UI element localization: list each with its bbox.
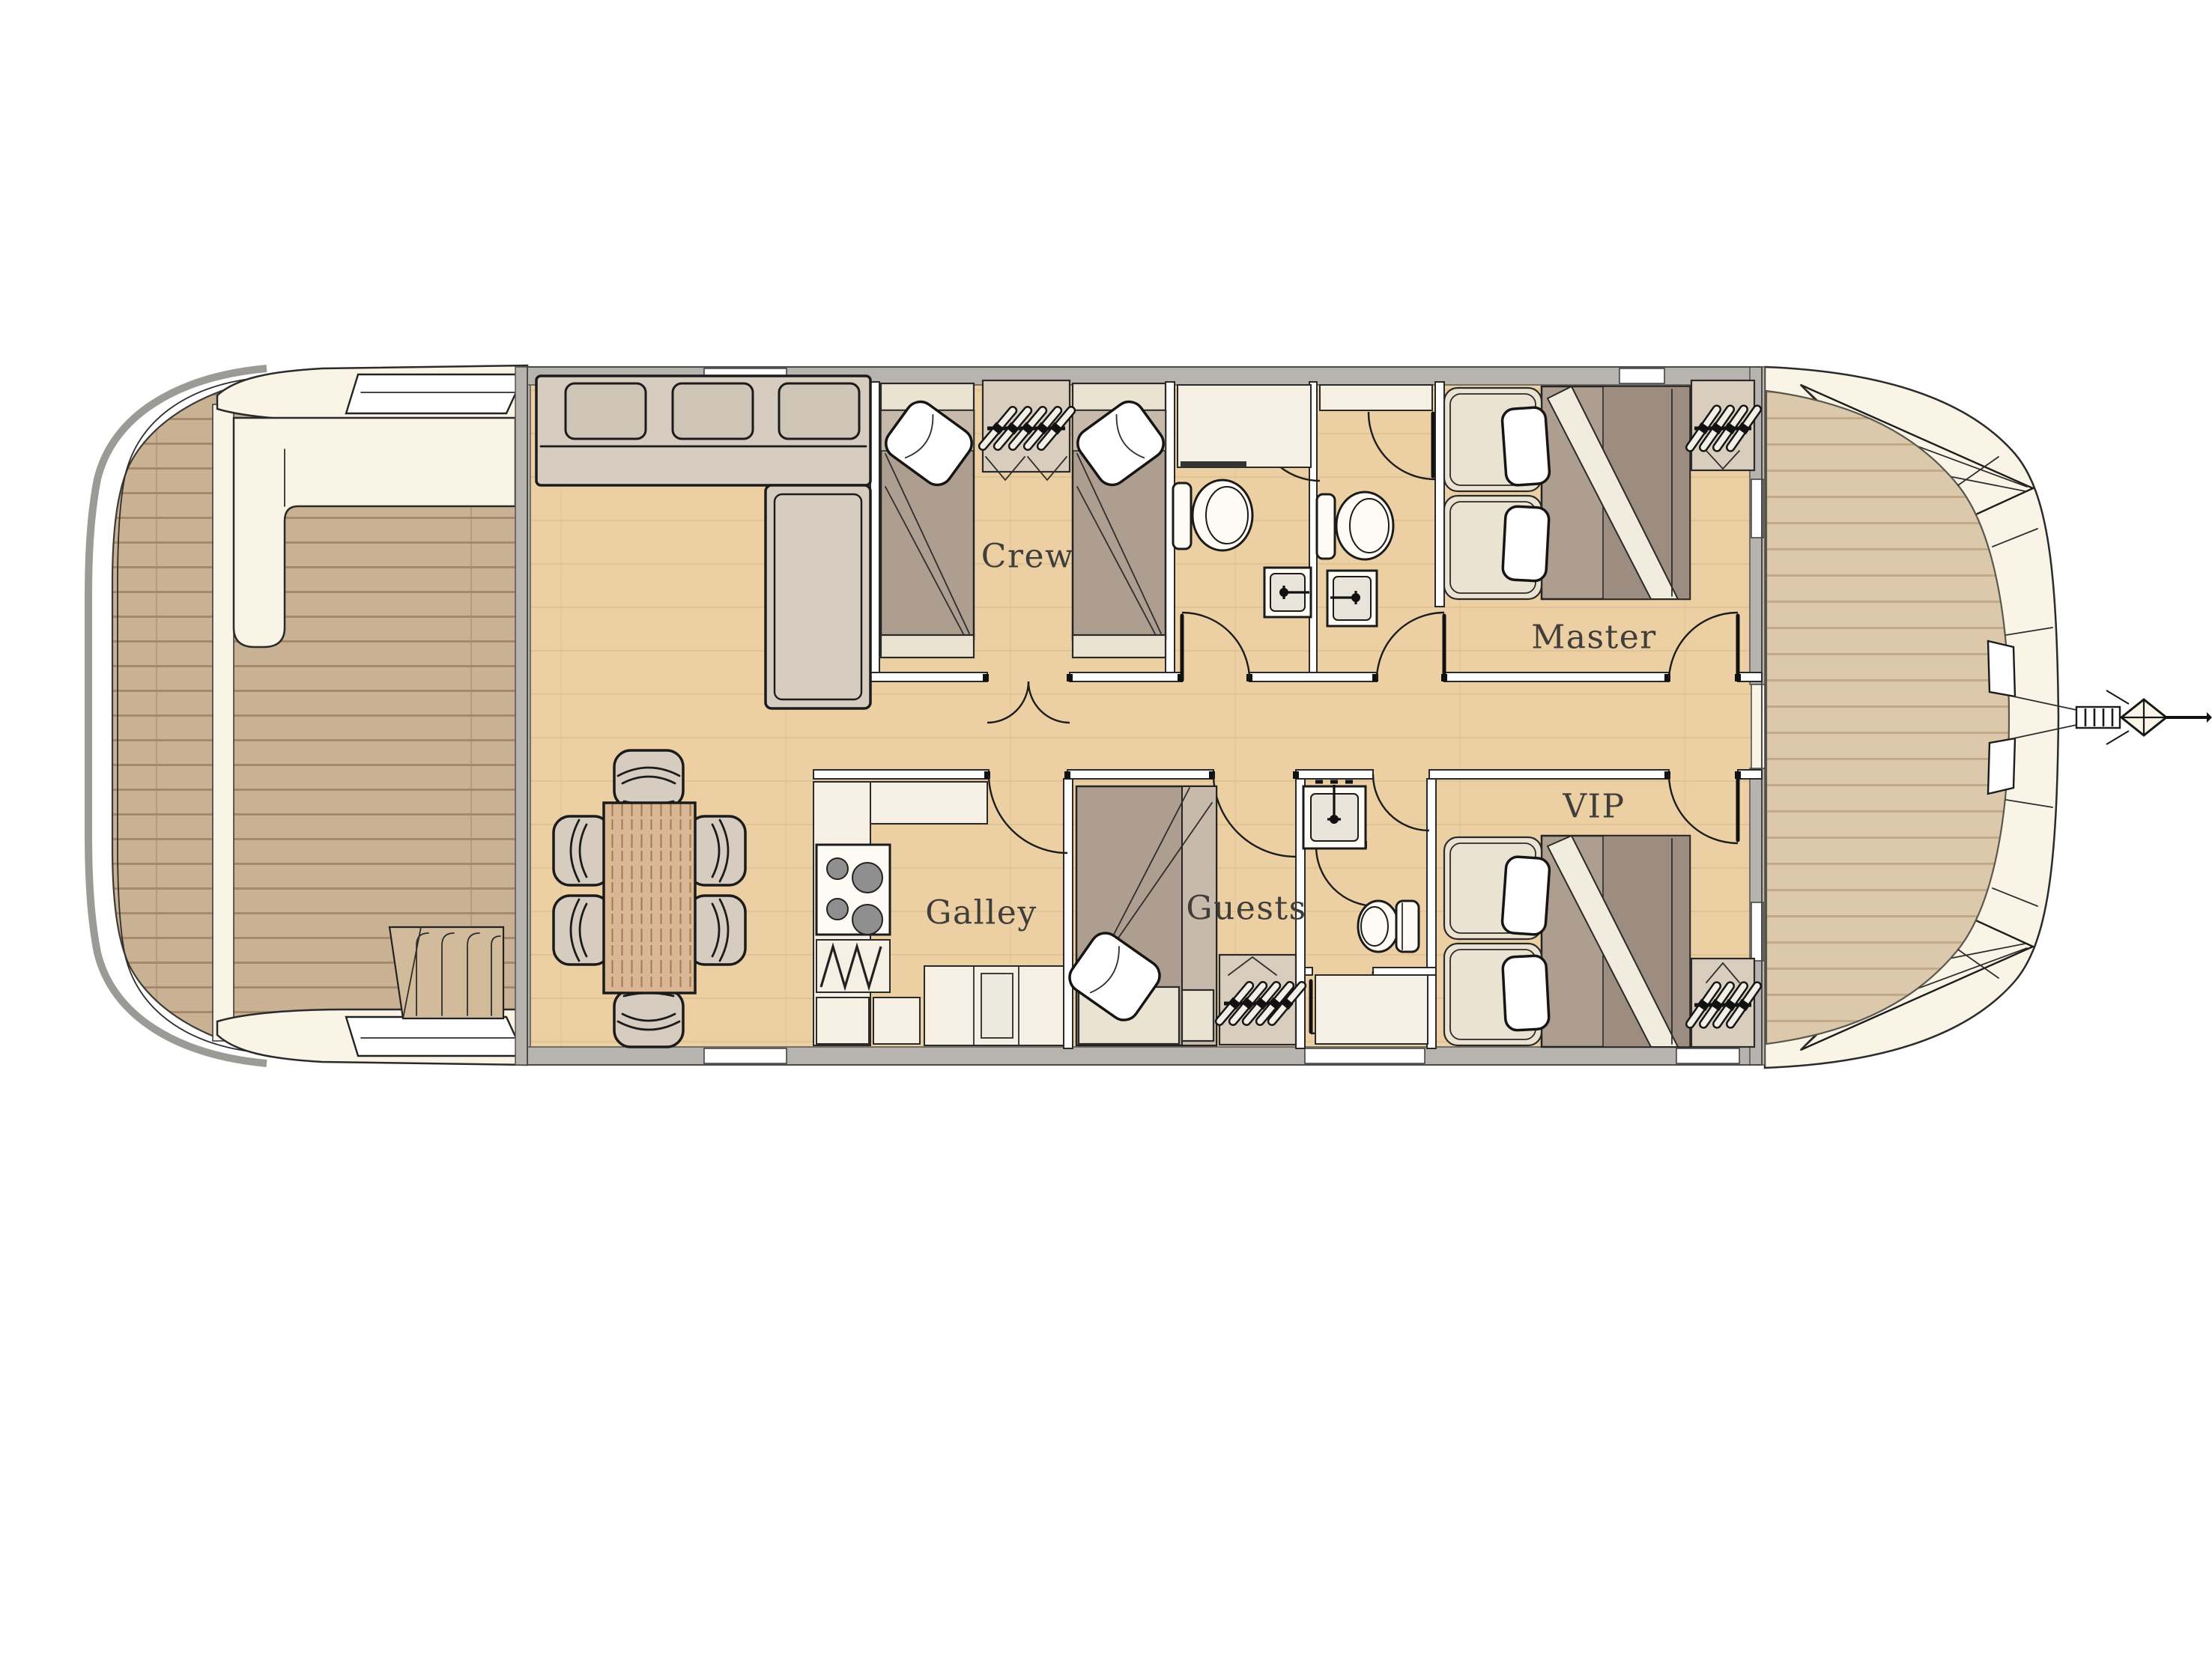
chaise-longue [766,485,870,708]
room-label-galley: Galley [925,894,1037,932]
sink-shared [1264,568,1311,617]
shower-guests [1315,975,1428,1044]
aft-stairs [390,927,503,1018]
master-wardrobe [1684,380,1764,470]
toilet-master [1317,492,1393,559]
vip-wardrobe [1684,959,1764,1047]
guests-wardrobe [1213,955,1308,1045]
yacht-floor-plan: Crew [0,0,2212,1658]
room-label-guests: Guests [1186,890,1306,928]
sink-guests [1303,782,1366,848]
bow-window-upper [1988,641,2015,696]
deck-hatch-port [346,374,524,413]
crew-bed-right [1072,383,1169,658]
galley-counter-south [924,966,1064,1045]
room-label-crew: Crew [981,538,1074,576]
bow-window-lower [1988,738,2015,794]
dining-table [604,803,695,993]
main-cabin: Crew [515,367,1765,1065]
toilet-guests [1358,901,1419,952]
stove [816,845,890,935]
crew-wardrobe [976,380,1077,480]
sink-master [1327,571,1377,626]
toilet-shared [1173,480,1252,550]
salon-sofa [536,376,870,485]
bow-doorstep [1751,684,1765,768]
room-label-vip: VIP [1562,788,1625,826]
deck-hatch-starboard [346,1017,524,1056]
room-label-master: Master [1531,619,1657,657]
companionway-rack [816,940,890,992]
side-passage [213,404,234,1041]
aft-deck [88,365,527,1065]
crew-bed-left [880,383,978,658]
